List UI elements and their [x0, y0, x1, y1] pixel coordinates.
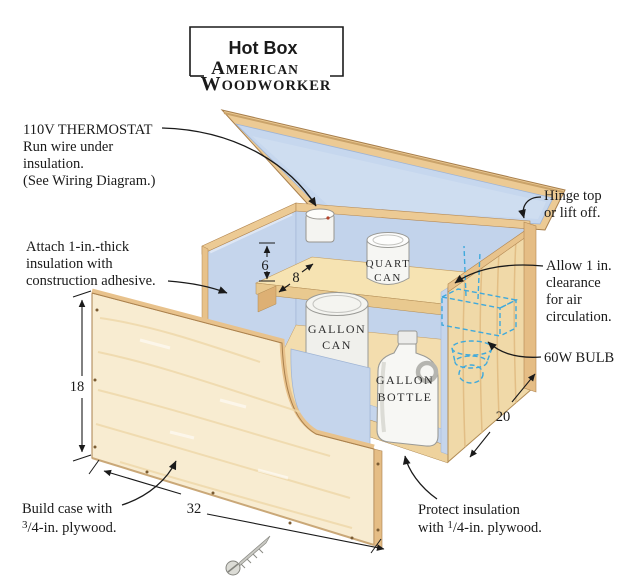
screw-dot [96, 309, 99, 312]
dimension-18: 18 [70, 291, 91, 461]
thermostat-top [306, 209, 334, 219]
dim-20-value: 20 [496, 409, 511, 425]
protect-leader-arrow [405, 456, 437, 499]
screw-dot [94, 446, 97, 449]
quart-can-label-2: CAN [374, 272, 402, 284]
thermostat-callout-line3: insulation. [23, 156, 84, 172]
dim-32-value: 32 [187, 501, 202, 517]
protect-callout-line2-rest: /4-in. plywood. [453, 520, 542, 536]
thermostat-callout-line1: 110V THERMOSTAT [23, 122, 153, 138]
brand-rest-merican: MERICAN [226, 62, 299, 77]
thermostat-callout-line2: Run wire under [23, 139, 113, 155]
protect-insulation-callout: Protect insulation with 1/4-in. plywood. [418, 502, 542, 536]
quart-can: QUART CAN [366, 233, 411, 285]
brand-initial-w: W [201, 73, 222, 95]
brand-rest-oodworker: OODWORKER [222, 78, 332, 94]
gallon-bottle-label-1: GALLON [376, 373, 434, 387]
screw-dot [146, 471, 149, 474]
thermostat [306, 209, 334, 242]
screw-dot [289, 522, 292, 525]
hot-box-illustration: Hot Box AMERICAN WOODWORKER [0, 0, 640, 585]
hinge-callout-line2: or lift off. [544, 205, 601, 221]
gallon-bottle-label-2: BOTTLE [378, 390, 433, 404]
screw [226, 536, 270, 575]
dim-8-value: 8 [292, 270, 299, 286]
allow-callout-line4: circulation. [546, 309, 612, 325]
dim-tick [73, 291, 91, 297]
thermostat-callout-line4: (See Wiring Diagram.) [23, 173, 156, 189]
attach-callout-line2: insulation with [26, 256, 113, 272]
protect-callout-pre: with [418, 520, 447, 536]
protect-callout-line2: with 1/4-in. plywood. [418, 519, 542, 536]
thermostat-indicator-dot [326, 216, 329, 219]
screw-dot [377, 529, 380, 532]
dim-tick [73, 455, 91, 461]
screw-dot [351, 537, 354, 540]
brand-line-american: AMERICAN [211, 58, 299, 79]
allow-callout-line1: Allow 1 in. [546, 258, 612, 274]
build-callout-line2: 3/4-in. plywood. [22, 519, 117, 536]
allow-clearance-callout: Allow 1 in. clearance for air circulatio… [546, 258, 612, 325]
protect-callout-line1: Protect insulation [418, 502, 521, 518]
thermostat-callout: 110V THERMOSTAT Run wire under insulatio… [23, 122, 156, 189]
attach-callout-line3: construction adhesive. [26, 273, 156, 289]
hinge-callout-line1: Hinge top [544, 188, 602, 204]
bottle-cap [398, 331, 417, 344]
allow-callout-line3: for air [546, 292, 582, 308]
build-callout-line1: Build case with [22, 501, 113, 517]
screw-dot [377, 463, 380, 466]
hot-box-diagram-page: Hot Box AMERICAN WOODWORKER [0, 0, 640, 585]
dim-6-value: 6 [261, 258, 268, 274]
back-right-corner-post [524, 222, 536, 392]
quart-can-label-1: QUART [366, 258, 411, 270]
allow-callout-line2: clearance [546, 275, 601, 291]
screw-dot [94, 379, 97, 382]
page-title: Hot Box [229, 38, 298, 58]
hinge-callout: Hinge top or lift off. [544, 188, 602, 221]
gallon-can-label-1: GALLON [308, 322, 366, 336]
dim-tick [89, 460, 99, 474]
screw-dot [212, 492, 215, 495]
gallon-can-label-2: CAN [322, 338, 352, 352]
dim-18-value: 18 [70, 379, 85, 395]
attach-callout-line1: Attach 1-in.-thick [26, 239, 130, 255]
attach-insulation-callout: Attach 1-in.-thick insulation with const… [26, 239, 156, 289]
bulb-callout: 60W BULB [544, 350, 614, 366]
title-box: Hot Box AMERICAN WOODWORKER [190, 27, 343, 95]
build-callout-line2-rest: /4-in. plywood. [28, 520, 117, 536]
build-case-callout: Build case with 3/4-in. plywood. [22, 501, 117, 536]
